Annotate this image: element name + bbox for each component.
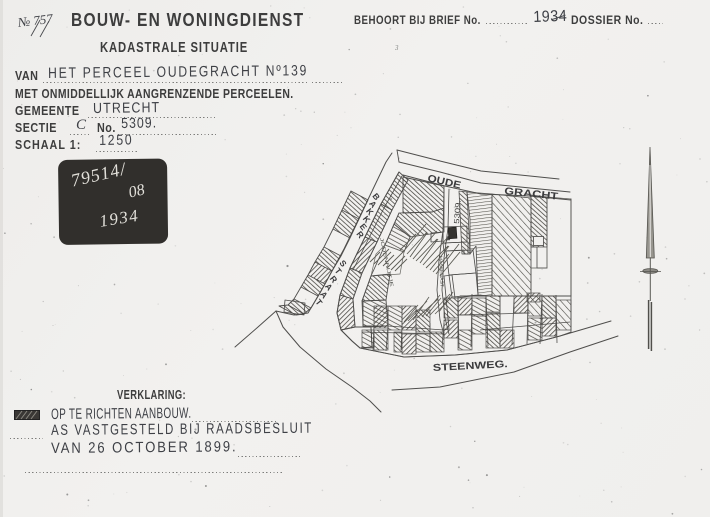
svg-text:3: 3 (394, 44, 399, 52)
svg-text:STEENWEG.: STEENWEG. (433, 359, 509, 374)
svg-text:5309.: 5309. (452, 200, 463, 225)
